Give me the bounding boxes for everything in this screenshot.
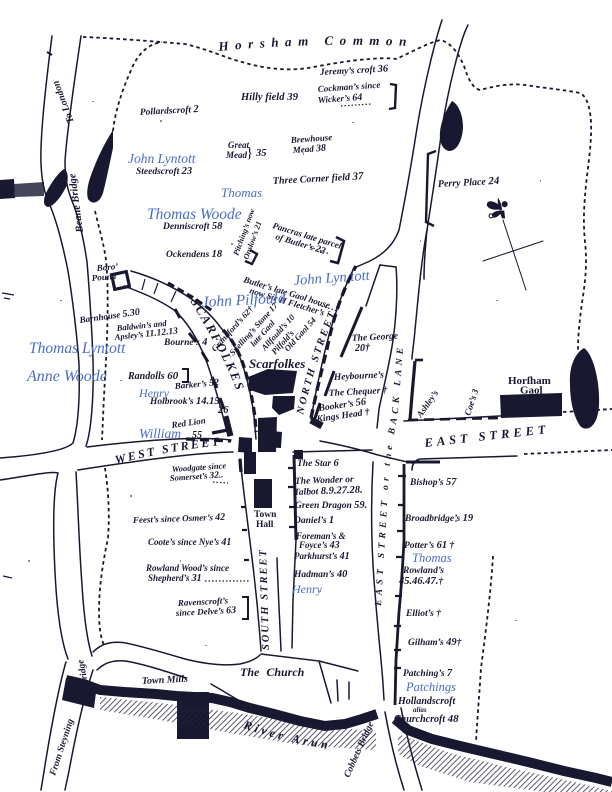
svg-text:The Church: The Church bbox=[240, 665, 305, 679]
svg-text:Scarfolkes: Scarfolkes bbox=[249, 356, 305, 371]
svg-text:Coote’s since Nye’s 41: Coote’s since Nye’s 41 bbox=[148, 537, 231, 548]
svg-text:Hall: Hall bbox=[256, 520, 274, 530]
svg-text:Gaol: Gaol bbox=[520, 385, 543, 397]
svg-text:26: 26 bbox=[217, 405, 229, 416]
svg-text:Henry: Henry bbox=[291, 582, 323, 596]
svg-text:The Star 6: The Star 6 bbox=[297, 458, 339, 469]
svg-text:Hadman’s 40: Hadman’s 40 bbox=[293, 569, 348, 580]
svg-text:Steedscroft 23: Steedscroft 23 bbox=[136, 166, 192, 177]
svg-text:Patching’s 7: Patching’s 7 bbox=[403, 668, 453, 679]
svg-text:35: 35 bbox=[255, 148, 267, 159]
svg-text:Shepherd’s 31: Shepherd’s 31 bbox=[148, 573, 202, 584]
svg-text:Town: Town bbox=[254, 510, 277, 520]
svg-text:Foyce’s 43: Foyce’s 43 bbox=[298, 540, 340, 551]
svg-text:Churchcroft 48: Churchcroft 48 bbox=[394, 713, 459, 725]
svg-text:William: William bbox=[139, 426, 181, 441]
svg-text:Gilham’s 49†: Gilham’s 49† bbox=[408, 637, 462, 648]
svg-text:Bourne’s 4: Bourne’s 4 bbox=[163, 337, 207, 348]
svg-text:Mead: Mead bbox=[225, 150, 247, 160]
svg-text:Hollandscroft: Hollandscroft bbox=[397, 696, 456, 707]
svg-text:Thomas Lyntott: Thomas Lyntott bbox=[29, 340, 126, 357]
svg-text:Rowland’s: Rowland’s bbox=[402, 566, 444, 576]
svg-text:Parkhurst’s 41: Parkhurst’s 41 bbox=[294, 551, 350, 562]
svg-text:Daniel’s 1: Daniel’s 1 bbox=[293, 515, 334, 526]
svg-text:Elliot’s †: Elliot’s † bbox=[405, 609, 441, 619]
svg-text:Green Dragon 59.: Green Dragon 59. bbox=[295, 500, 367, 511]
svg-text:Bishop’s 57: Bishop’s 57 bbox=[409, 477, 457, 488]
svg-text:55: 55 bbox=[192, 430, 202, 441]
svg-text:45.46.47.†: 45.46.47.† bbox=[398, 576, 443, 587]
svg-text:Henry: Henry bbox=[138, 386, 170, 400]
svg-text:alias: alias bbox=[413, 706, 427, 714]
svg-text:Thomas Woode: Thomas Woode bbox=[147, 206, 242, 223]
svg-text:Ockendens 18: Ockendens 18 bbox=[166, 249, 223, 260]
svg-text:Potter’s 61 †: Potter’s 61 † bbox=[404, 540, 455, 551]
svg-text:Anne Woode: Anne Woode bbox=[26, 368, 107, 385]
svg-text:Broadbridge’s 19: Broadbridge’s 19 bbox=[404, 513, 474, 524]
svg-text:Rowland Wood’s since: Rowland Wood’s since bbox=[145, 563, 229, 573]
svg-text:20†: 20† bbox=[354, 343, 371, 354]
svg-text:Randolls 60: Randolls 60 bbox=[127, 370, 179, 382]
svg-text:Patchings: Patchings bbox=[405, 680, 456, 694]
svg-text:Hilly field 39: Hilly field 39 bbox=[240, 91, 299, 103]
svg-text:Thomas: Thomas bbox=[221, 185, 262, 200]
svg-text:}: } bbox=[246, 145, 253, 161]
svg-text:John Lyntott: John Lyntott bbox=[128, 151, 197, 166]
svg-text:Thomas: Thomas bbox=[412, 551, 452, 565]
